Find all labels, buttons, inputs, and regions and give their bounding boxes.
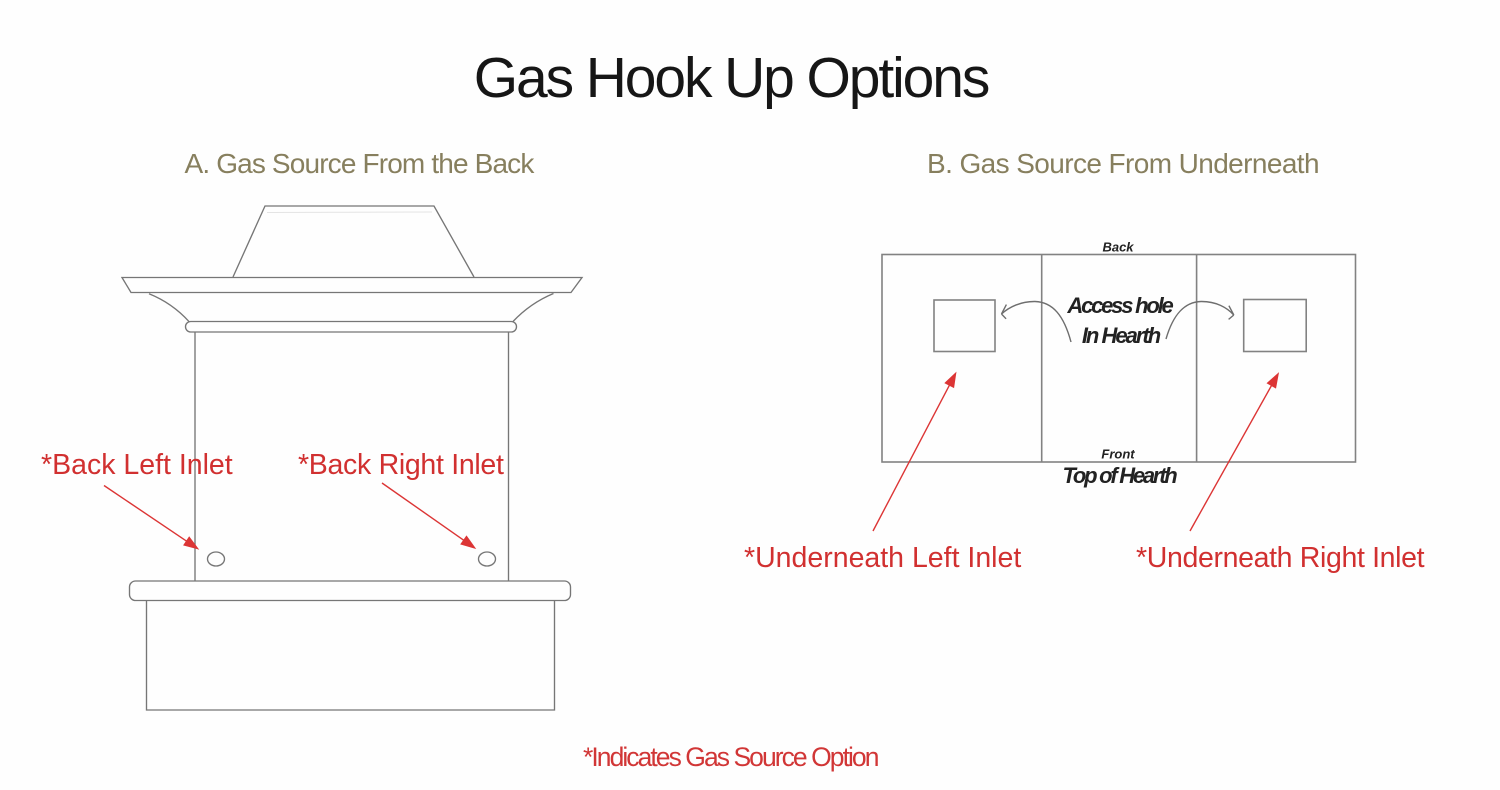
svg-text:*Underneath Left Inlet: *Underneath Left Inlet bbox=[744, 542, 1021, 574]
svg-text:Access hole: Access hole bbox=[1066, 293, 1173, 318]
svg-text:Back: Back bbox=[1102, 240, 1134, 255]
svg-text:B. Gas Source From Underneath: B. Gas Source From Underneath bbox=[927, 148, 1319, 179]
svg-text:In Hearth: In Hearth bbox=[1082, 323, 1161, 348]
svg-text:Front: Front bbox=[1101, 447, 1135, 462]
svg-text:A. Gas Source From the Back: A. Gas Source From the Back bbox=[185, 148, 536, 179]
svg-text:*Underneath Right Inlet: *Underneath Right Inlet bbox=[1136, 542, 1425, 574]
svg-text:Gas Hook Up Options: Gas Hook Up Options bbox=[474, 46, 989, 110]
svg-text:*Indicates Gas Source Option: *Indicates Gas Source Option bbox=[583, 742, 879, 772]
svg-text:*Back Left Inlet: *Back Left Inlet bbox=[41, 449, 233, 481]
svg-text:Top of Hearth: Top of Hearth bbox=[1063, 463, 1178, 488]
svg-text:*Back Right Inlet: *Back Right Inlet bbox=[298, 449, 504, 481]
